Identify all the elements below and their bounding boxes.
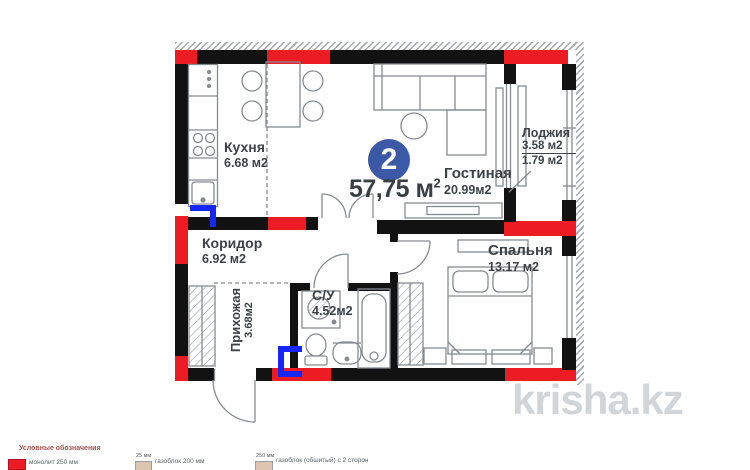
hallway-wardrobe: [189, 286, 215, 366]
wall-segment: [562, 64, 576, 90]
wall-segment: [175, 368, 188, 381]
wall-segment: [331, 368, 505, 381]
legend-swatch-gasblock: [135, 461, 152, 470]
legend-swatch-gasblock-clad: [255, 461, 273, 470]
legend-title: Условные обозначения: [19, 445, 101, 452]
wall-segment: [348, 283, 390, 291]
wall-segment: [504, 64, 516, 84]
bedroom-wardrobe: [398, 283, 423, 365]
dining-table: [242, 62, 323, 127]
room-label-living: Гостиная 20.99м2: [444, 165, 512, 197]
stove-icon: [194, 134, 215, 156]
wall-segment: [268, 217, 306, 230]
coffee-table: [401, 113, 427, 139]
entrance-door: [213, 369, 255, 422]
bedroom-poufs: [424, 348, 552, 364]
room-label-kitchen: Кухня 6.68 м2: [224, 139, 268, 170]
kitchen-sink-icon: [192, 182, 214, 204]
legend-size-gasblock: 25 мм: [136, 453, 151, 459]
bathroom-door: [314, 254, 348, 288]
watermark: krisha.kz: [512, 376, 683, 424]
floorplan-screenshot: krisha.kz: [0, 0, 750, 470]
bathroom-sink-icon: [333, 342, 361, 364]
bathtub-icon: [358, 289, 390, 368]
wall-segment: [504, 221, 576, 236]
wall-segment: [306, 217, 318, 230]
legend-label-monolith: монолит 250 мм: [29, 459, 78, 466]
wall-segment: [175, 356, 188, 368]
bedroom-door: [397, 241, 430, 274]
window-bedroom: [567, 256, 572, 338]
room-label-hallway: Прихожая 3.68м2: [228, 280, 264, 360]
room-label-loggia: Лоджия 3.58 м2 1.79 м2: [522, 126, 576, 167]
bed: [448, 267, 532, 354]
wall-segment: [504, 50, 568, 64]
wall-segment: [562, 200, 576, 221]
legend-swatch-monolith: [8, 459, 26, 470]
insulation-hatch-right: [576, 42, 584, 385]
tv-stand: [405, 203, 502, 218]
wall-segment: [188, 368, 214, 381]
legend-size-gasblock-clad: 250 мм: [256, 453, 274, 459]
total-area: 57,75 м2: [349, 175, 440, 204]
wall-segment: [256, 368, 272, 381]
wall-segment: [390, 272, 398, 368]
wall-segment: [390, 234, 398, 242]
wall-segment: [197, 50, 267, 64]
wall-segment: [330, 50, 504, 64]
insulation-hatch-top: [175, 42, 576, 50]
wall-segment: [175, 50, 197, 64]
wall-segment: [175, 264, 188, 356]
wall-segment: [175, 216, 188, 264]
wall-segment: [377, 220, 504, 234]
wall-segment: [562, 236, 576, 256]
wall-segment: [562, 338, 576, 370]
vent-duct-kitchen: [190, 205, 216, 227]
legend-label-gasblock: газоблок 200 мм: [155, 458, 204, 465]
room-label-bedroom: Спальня 13.17 м2: [488, 242, 553, 274]
room-label-corridor: Коридор 6.92 м2: [202, 235, 262, 266]
toilet-icon: [305, 334, 327, 365]
vent-duct-bathroom: [278, 346, 302, 377]
room-label-bathroom: С/У 4.52м2: [312, 287, 353, 318]
wall-segment: [175, 64, 188, 204]
wall-segment: [267, 50, 330, 64]
kitchen-counter: [188, 65, 218, 207]
legend-label-gasblock-clad: газоблок (обшитый) с 2 сторон: [276, 457, 369, 464]
